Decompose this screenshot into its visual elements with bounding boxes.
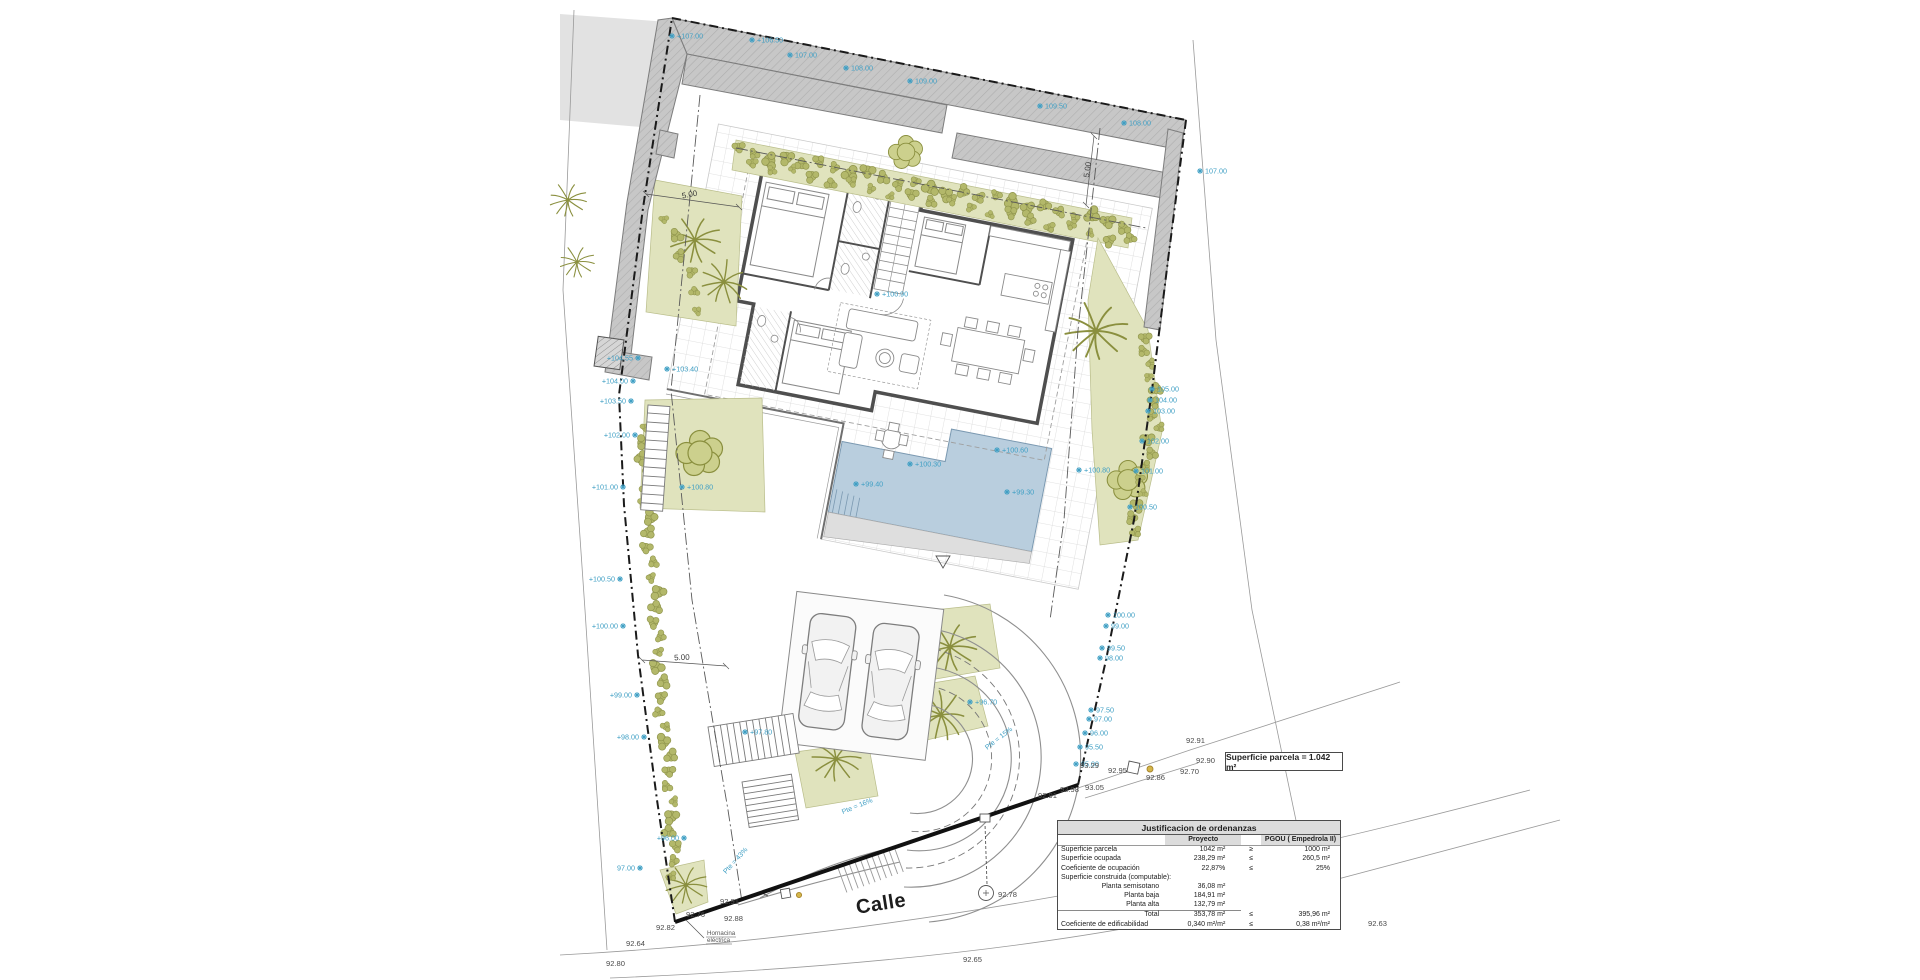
elevation-label: +106.50: [757, 36, 783, 45]
elevation-label: +100.90: [882, 290, 908, 299]
elevation-label: +103.50: [600, 397, 626, 406]
ordinance-cell: 0,340 m²/m²: [1165, 920, 1241, 929]
ordinance-header-row: ProyectoPGOU ( Empedrola II): [1058, 835, 1340, 846]
ordinance-cell: 260,5 m²: [1261, 855, 1340, 864]
ordinance-cell: [1261, 892, 1340, 901]
elevation-label: +100.80: [687, 483, 713, 492]
elevation-label: 107.00: [1205, 167, 1227, 176]
survey-label: 92.76: [686, 910, 705, 919]
elevation-label: +99.40: [861, 480, 883, 489]
elevation-label: 102.00: [1147, 437, 1169, 446]
ordinance-cell: Total: [1058, 911, 1165, 921]
elevation-label: 99.00: [1111, 622, 1129, 631]
elevation-label: +97.80: [750, 728, 772, 737]
elevation-label: 109.50: [1045, 102, 1067, 111]
garage-area: [778, 591, 943, 760]
survey-label: 92.82: [656, 923, 675, 932]
ordinance-cell: 25%: [1261, 864, 1340, 873]
elevation-label: 100.50: [1135, 503, 1157, 512]
elevation-label: 101.00: [1141, 467, 1163, 476]
elevation-label: +100.30: [915, 460, 941, 469]
ordinance-cell: 1042 m²: [1165, 845, 1241, 855]
ordinance-row: Planta semisotano36,08 m²: [1058, 883, 1340, 892]
elevation-label: +100.60: [1002, 446, 1028, 455]
elevation-label: +101.00: [592, 483, 618, 492]
ordinance-cell: Planta alta: [1058, 901, 1165, 911]
elevation-label: +103.40: [672, 365, 698, 374]
elevation-label: 108.00: [1129, 119, 1151, 128]
elevation-label: +104.00: [602, 377, 628, 386]
ordinance-cell: Planta baja: [1058, 892, 1165, 901]
elevation-label: 96.00: [1090, 729, 1108, 738]
survey-label: 92.70: [1180, 767, 1199, 776]
elevation-label: +104.55: [607, 354, 633, 363]
elevation-label: +100.00: [592, 622, 618, 631]
elevation-label: +99.00: [610, 691, 632, 700]
ordinance-cell: 22,87%: [1165, 864, 1241, 873]
ordinance-row: Superficie ocupada238,29 m²≤260,5 m²: [1058, 855, 1340, 864]
ordinance-row: Coeficiente de ocupación22,87%≤25%: [1058, 864, 1340, 873]
ordinance-cell: 132,79 m²: [1165, 901, 1241, 911]
ordinance-cell: Superficie ocupada: [1058, 855, 1165, 864]
ordinance-cell: 36,08 m²: [1165, 883, 1241, 892]
ordinance-cell: 1000 m²: [1261, 845, 1340, 855]
site-plan-page: +107.00+106.50107.00108.00109.00109.5010…: [0, 0, 1920, 980]
elevation-label: 107.00: [795, 51, 817, 60]
elevation-label: +96.70: [975, 698, 997, 707]
elevation-label: 99.50: [1107, 644, 1125, 653]
survey-label: 92.91: [1038, 791, 1057, 800]
ordinance-header-cell: PGOU ( Empedrola II): [1261, 835, 1340, 846]
ordinance-cell: [1241, 883, 1261, 892]
ordinance-cell: 395,96 m²: [1261, 911, 1340, 921]
ordinance-table-title: Justificacion de ordenanzas: [1058, 821, 1340, 835]
survey-label: 92.78: [998, 890, 1017, 899]
elevation-label: 97.00: [617, 864, 635, 873]
survey-label: 92.91: [720, 897, 739, 906]
ordinance-cell: 0,38 m²/m²: [1261, 920, 1340, 929]
elevation-label: 95.50: [1085, 743, 1103, 752]
ordinance-section-cell: Superficie construida (computable):: [1058, 873, 1340, 882]
elevation-label: 98.00: [1105, 654, 1123, 663]
elevation-label: +100.50: [589, 575, 615, 584]
survey-label: 93.29: [1080, 761, 1099, 770]
elevation-label: 97.00: [1094, 715, 1112, 724]
elevation-label: +100.80: [1084, 466, 1110, 475]
survey-label: 92.65: [963, 955, 982, 964]
ordinance-cell: ≤: [1241, 864, 1261, 873]
ordinance-cell: 184,91 m²: [1165, 892, 1241, 901]
ordinance-cell: Coeficiente de ocupación: [1058, 864, 1165, 873]
survey-label: 92.91: [1186, 736, 1205, 745]
ordinance-header-cell: Proyecto: [1165, 835, 1241, 846]
outdoor-stairs-2: [742, 774, 799, 827]
ordinance-table-body: ProyectoPGOU ( Empedrola II)Superficie p…: [1058, 835, 1340, 930]
elevation-label: 108.00: [851, 64, 873, 73]
ordinance-cell: ≤: [1241, 920, 1261, 929]
ordinance-cell: [1261, 901, 1340, 911]
ordinance-row: Total353,78 m²≤395,96 m²: [1058, 911, 1340, 921]
ordinance-cell: ≥: [1241, 845, 1261, 855]
ordinance-table: Justificacion de ordenanzas ProyectoPGOU…: [1057, 820, 1341, 930]
elevation-label: 100.00: [1113, 611, 1135, 620]
ordinance-row: Planta alta132,79 m²: [1058, 901, 1340, 911]
ordinance-header-cell: [1058, 835, 1165, 846]
survey-label: 92.98: [1060, 785, 1079, 794]
ordinance-cell: [1241, 892, 1261, 901]
survey-label: 92.86: [1146, 773, 1165, 782]
elevation-label: 105.00: [1157, 385, 1179, 394]
ordinance-cell: Coeficiente de edificabilidad: [1058, 920, 1165, 929]
ordinance-cell: [1241, 901, 1261, 911]
ordinance-cell: 238,29 m²: [1165, 855, 1241, 864]
ordinance-row: Coeficiente de edificabilidad0,340 m²/m²…: [1058, 920, 1340, 929]
elevation-label: 104.00: [1155, 396, 1177, 405]
elevation-label: +102.00: [604, 431, 630, 440]
site-plan-drawing: +107.00+106.50107.00108.00109.00109.5010…: [0, 0, 1920, 980]
elevation-label: +98.00: [617, 733, 639, 742]
survey-label: 93.05: [1085, 783, 1104, 792]
elevation-label: +107.00: [677, 32, 703, 41]
ordinance-cell: Planta semisotano: [1058, 883, 1165, 892]
elevation-label: +96.00: [657, 834, 679, 843]
ordinance-row: Planta baja184,91 m²: [1058, 892, 1340, 901]
elevation-label: 97.50: [1096, 706, 1114, 715]
elevation-label: +99.30: [1012, 488, 1034, 497]
survey-label: 92.80: [606, 959, 625, 968]
ordinance-cell: ≤: [1241, 911, 1261, 921]
electrical-niche-label: Hornacina: [707, 930, 736, 937]
ordinance-row: Superficie construida (computable):: [1058, 873, 1340, 882]
ordinance-cell: 353,78 m²: [1165, 911, 1241, 921]
ordinance-cell: [1261, 883, 1340, 892]
ordinance-cell: ≤: [1241, 855, 1261, 864]
ordinance-row: Superficie parcela1042 m²≥1000 m²: [1058, 845, 1340, 855]
survey-label: 92.63: [1368, 919, 1387, 928]
survey-label: 92.88: [724, 914, 743, 923]
elevation-label: 103.00: [1153, 407, 1175, 416]
ordinance-cell: Superficie parcela: [1058, 845, 1165, 855]
ordinance-table-grid: ProyectoPGOU ( Empedrola II)Superficie p…: [1058, 835, 1340, 930]
ordinance-header-cell: [1241, 835, 1261, 846]
parcel-area-box: Superficie parcela = 1.042 m²: [1225, 752, 1343, 771]
survey-label: 92.90: [1196, 756, 1215, 765]
survey-label: 92.64: [626, 939, 645, 948]
survey-label: 92.95: [1108, 766, 1127, 775]
electrical-niche-label: eléctrica: [707, 937, 731, 944]
elevation-label: 109.00: [915, 77, 937, 86]
dimension-label: 5.00: [674, 653, 691, 663]
